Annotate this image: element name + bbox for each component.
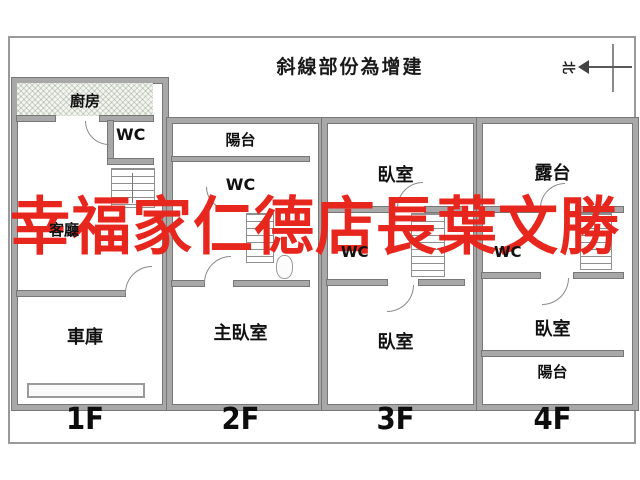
room-label-bedroom-back: 臥室 — [327, 328, 464, 354]
wall — [172, 281, 204, 286]
garage-door — [27, 383, 145, 398]
room-label-living: 客廳 — [49, 219, 79, 240]
wall — [17, 116, 55, 121]
wall — [574, 273, 623, 278]
wall — [234, 281, 309, 286]
room-label-bedroom-front: 臥室 — [327, 161, 464, 187]
wall — [482, 351, 623, 356]
wall — [482, 273, 540, 278]
wall — [419, 280, 464, 285]
room-label-balcony-4f: 陽台 — [482, 361, 623, 382]
north-label: 北 — [560, 61, 579, 74]
room-label-garage: 車庫 — [17, 323, 153, 349]
floor-caption-1f: 1F — [18, 402, 152, 437]
floor-caption-4f: 4F — [483, 402, 622, 437]
north-arrow-icon — [588, 66, 632, 68]
wall — [108, 159, 153, 164]
room-label-bedroom-4f: 臥室 — [482, 315, 623, 341]
room-label-kitchen: 廚房 — [17, 90, 153, 111]
room-label-wc-1f: WC — [116, 125, 145, 144]
door-arc — [85, 121, 109, 145]
compass-cross-line — [612, 44, 614, 92]
room-label-wc-4f: WC — [494, 243, 522, 261]
wall — [327, 280, 387, 285]
floor-caption-3f: 3F — [328, 402, 463, 437]
north-arrowhead-icon — [578, 60, 589, 74]
room-label-terrace: 露台 — [482, 159, 623, 185]
room-label-wc-3f: WC — [341, 243, 369, 261]
page-title: 斜線部份為增建 — [60, 52, 640, 79]
door-arc — [387, 285, 414, 312]
room-label-wc-2f: WC — [172, 175, 309, 194]
room-label-balcony-2f: 陽台 — [172, 129, 309, 150]
floor-caption-2f: 2F — [173, 402, 308, 437]
wall — [172, 157, 309, 161]
floorplan-image: 斜線部份為增建 北 廚房 WC 客廳 車庫 陽台 WC — [0, 0, 640, 480]
wall — [17, 291, 125, 296]
door-arc — [542, 278, 569, 305]
watermark: 幸福家仁德店長葉文勝 — [10, 192, 634, 264]
door-arc — [125, 266, 152, 293]
room-label-master-bedroom: 主臥室 — [172, 319, 309, 345]
